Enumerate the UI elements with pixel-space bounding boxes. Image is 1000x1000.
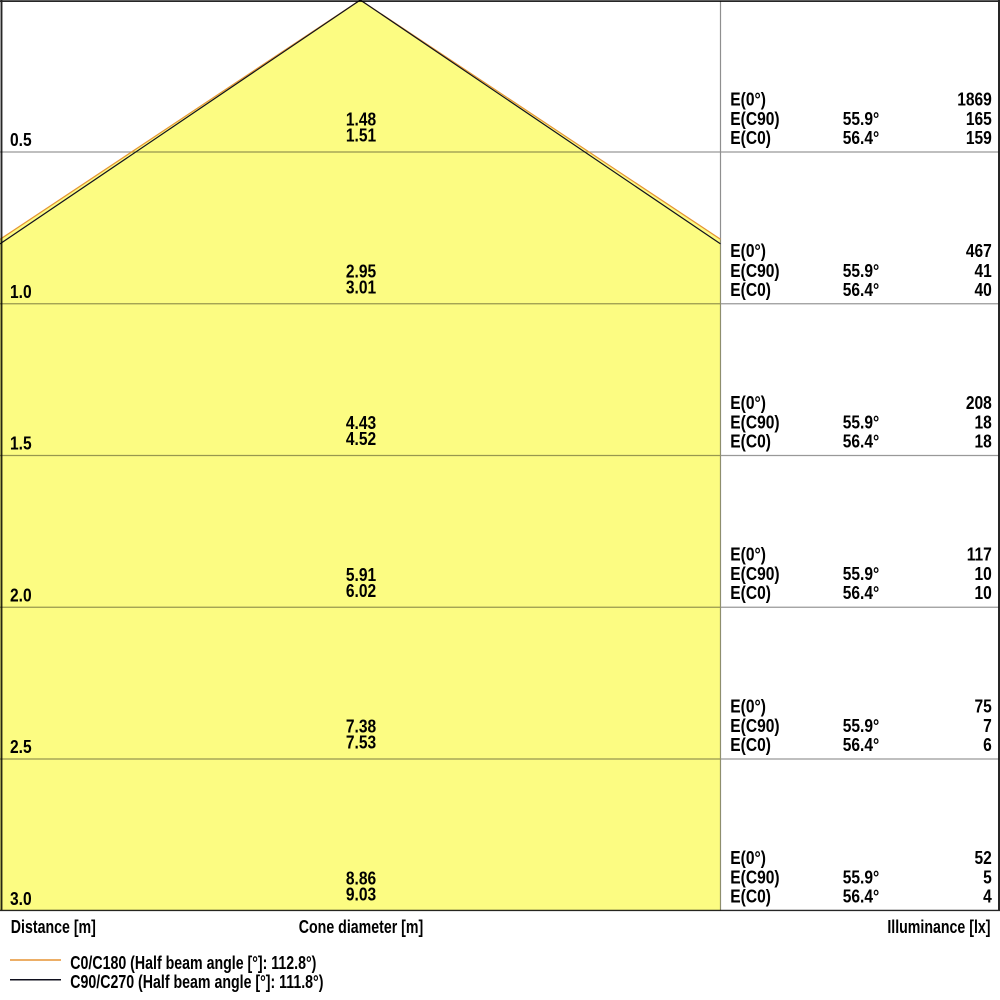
svg-text:40: 40	[975, 280, 992, 300]
svg-text:E(C90): E(C90)	[730, 868, 779, 888]
svg-text:55.9°: 55.9°	[843, 564, 880, 584]
svg-text:E(0°): E(0°)	[730, 241, 766, 261]
svg-text:2.0: 2.0	[10, 585, 32, 605]
svg-text:56.4°: 56.4°	[843, 887, 880, 907]
svg-text:E(C0): E(C0)	[730, 280, 771, 300]
svg-text:159: 159	[966, 128, 992, 148]
svg-text:E(0°): E(0°)	[730, 848, 766, 868]
svg-text:208: 208	[966, 393, 992, 413]
svg-text:4: 4	[983, 887, 992, 907]
svg-text:6: 6	[983, 735, 992, 755]
svg-text:Cone diameter [m]: Cone diameter [m]	[299, 917, 423, 937]
svg-text:56.4°: 56.4°	[843, 280, 880, 300]
svg-text:9.03: 9.03	[346, 884, 376, 904]
svg-text:C0/C180 (Half beam angle [°]:: C0/C180 (Half beam angle [°]: 112.8°)	[70, 953, 316, 973]
svg-text:117: 117	[967, 544, 992, 564]
svg-text:E(C90): E(C90)	[730, 564, 779, 584]
svg-text:E(C0): E(C0)	[730, 431, 771, 451]
svg-text:5: 5	[983, 868, 992, 888]
svg-text:1.51: 1.51	[346, 126, 376, 146]
svg-text:1.5: 1.5	[10, 433, 32, 453]
svg-text:2.5: 2.5	[10, 737, 32, 757]
svg-text:E(0°): E(0°)	[730, 696, 766, 716]
svg-text:E(C0): E(C0)	[730, 735, 771, 755]
svg-text:0.5: 0.5	[10, 130, 32, 150]
svg-text:55.9°: 55.9°	[843, 261, 880, 281]
svg-text:56.4°: 56.4°	[843, 583, 880, 603]
svg-text:41: 41	[975, 261, 992, 281]
svg-text:E(C90): E(C90)	[730, 716, 779, 736]
svg-text:E(0°): E(0°)	[730, 393, 766, 413]
svg-text:1.0: 1.0	[10, 282, 32, 302]
svg-text:C90/C270 (Half beam angle [°]:: C90/C270 (Half beam angle [°]: 111.8°)	[70, 972, 323, 992]
svg-text:E(C90): E(C90)	[730, 109, 779, 129]
svg-text:1869: 1869	[957, 89, 992, 109]
svg-text:56.4°: 56.4°	[843, 128, 880, 148]
svg-text:7.53: 7.53	[346, 733, 376, 753]
svg-text:3.01: 3.01	[346, 277, 376, 297]
svg-text:Distance [m]: Distance [m]	[11, 917, 96, 937]
svg-text:4.52: 4.52	[346, 429, 376, 449]
svg-text:18: 18	[975, 431, 992, 451]
svg-text:55.9°: 55.9°	[843, 412, 880, 432]
svg-text:10: 10	[975, 583, 992, 603]
svg-text:55.9°: 55.9°	[843, 716, 880, 736]
svg-text:18: 18	[975, 412, 992, 432]
svg-text:467: 467	[966, 241, 992, 261]
svg-text:Illuminance [lx]: Illuminance [lx]	[887, 917, 990, 937]
svg-text:E(C0): E(C0)	[730, 887, 771, 907]
svg-text:55.9°: 55.9°	[843, 868, 880, 888]
svg-text:E(0°): E(0°)	[730, 544, 766, 564]
svg-text:56.4°: 56.4°	[843, 735, 880, 755]
svg-text:E(C0): E(C0)	[730, 583, 771, 603]
svg-text:6.02: 6.02	[346, 581, 376, 601]
svg-text:165: 165	[966, 109, 992, 129]
svg-text:3.0: 3.0	[10, 889, 32, 909]
svg-text:52: 52	[975, 848, 992, 868]
svg-text:E(0°): E(0°)	[730, 89, 766, 109]
svg-text:10: 10	[975, 564, 992, 584]
svg-text:E(C90): E(C90)	[730, 412, 779, 432]
svg-text:7: 7	[983, 716, 992, 736]
svg-text:75: 75	[975, 696, 992, 716]
svg-text:56.4°: 56.4°	[843, 431, 880, 451]
svg-text:E(C90): E(C90)	[730, 261, 779, 281]
svg-text:E(C0): E(C0)	[730, 128, 771, 148]
svg-text:55.9°: 55.9°	[843, 109, 880, 129]
